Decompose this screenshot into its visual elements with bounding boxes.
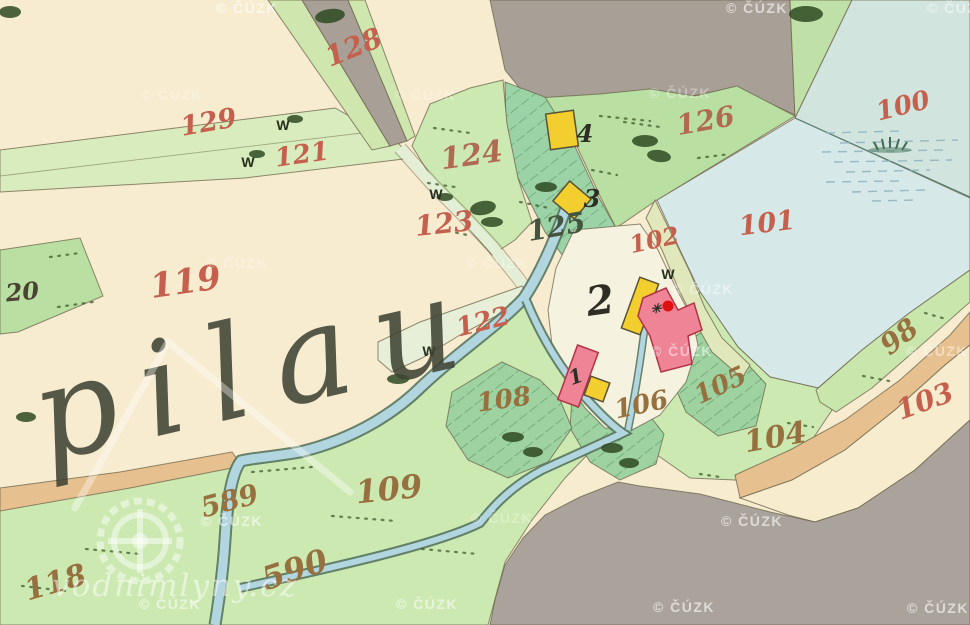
- parcel-label-123: 123: [413, 204, 475, 243]
- cuzk-watermark: © ČÚZK: [394, 86, 456, 103]
- parcel-label-120: 20: [3, 276, 40, 308]
- w-mark: W: [241, 154, 255, 170]
- cuzk-watermark: © ČÚZK: [653, 598, 715, 615]
- cuzk-watermark: © ČÚZK: [201, 512, 263, 529]
- cuzk-watermark: © ČÚZK: [907, 599, 969, 616]
- cuzk-watermark: © ČÚZK: [651, 342, 713, 359]
- cuzk-watermark: © ČÚZK: [721, 512, 783, 529]
- cadastral-map-canvas: ✳: [0, 0, 970, 625]
- w-mark: W: [661, 266, 675, 282]
- cuzk-watermark: © ČÚZK: [466, 254, 528, 271]
- cuzk-watermark: © ČÚZK: [139, 595, 201, 612]
- cuzk-watermark: © ČÚZK: [672, 280, 734, 297]
- cuzk-watermark: © ČÚZK: [906, 342, 968, 359]
- mill-wheel-icon: ✳: [651, 302, 663, 317]
- cuzk-watermark: © ČÚZK: [216, 0, 278, 16]
- cuzk-watermark: © ČÚZK: [726, 0, 788, 16]
- parcel-label-109: 109: [354, 467, 424, 512]
- house-4-wood: [546, 110, 579, 150]
- house-label-3: 3: [584, 184, 601, 213]
- cuzk-watermark: © ČÚZK: [927, 0, 970, 16]
- mill-wheel-hub-icon: [132, 533, 148, 549]
- cuzk-watermark: © ČÚZK: [649, 84, 711, 101]
- w-mark: W: [276, 117, 290, 133]
- cuzk-watermark: © ČÚZK: [396, 595, 458, 612]
- mill-location-marker: [663, 301, 674, 312]
- cuzk-watermark: © ČÚZK: [206, 254, 268, 271]
- reed-tuft-base: [868, 147, 912, 153]
- cadastral-map: ✳: [0, 0, 970, 625]
- cuzk-watermark: © ČÚZK: [471, 509, 533, 526]
- w-mark: W: [429, 186, 443, 202]
- cuzk-watermark: © ČÚZK: [141, 86, 203, 103]
- house-label-4: 4: [577, 119, 594, 148]
